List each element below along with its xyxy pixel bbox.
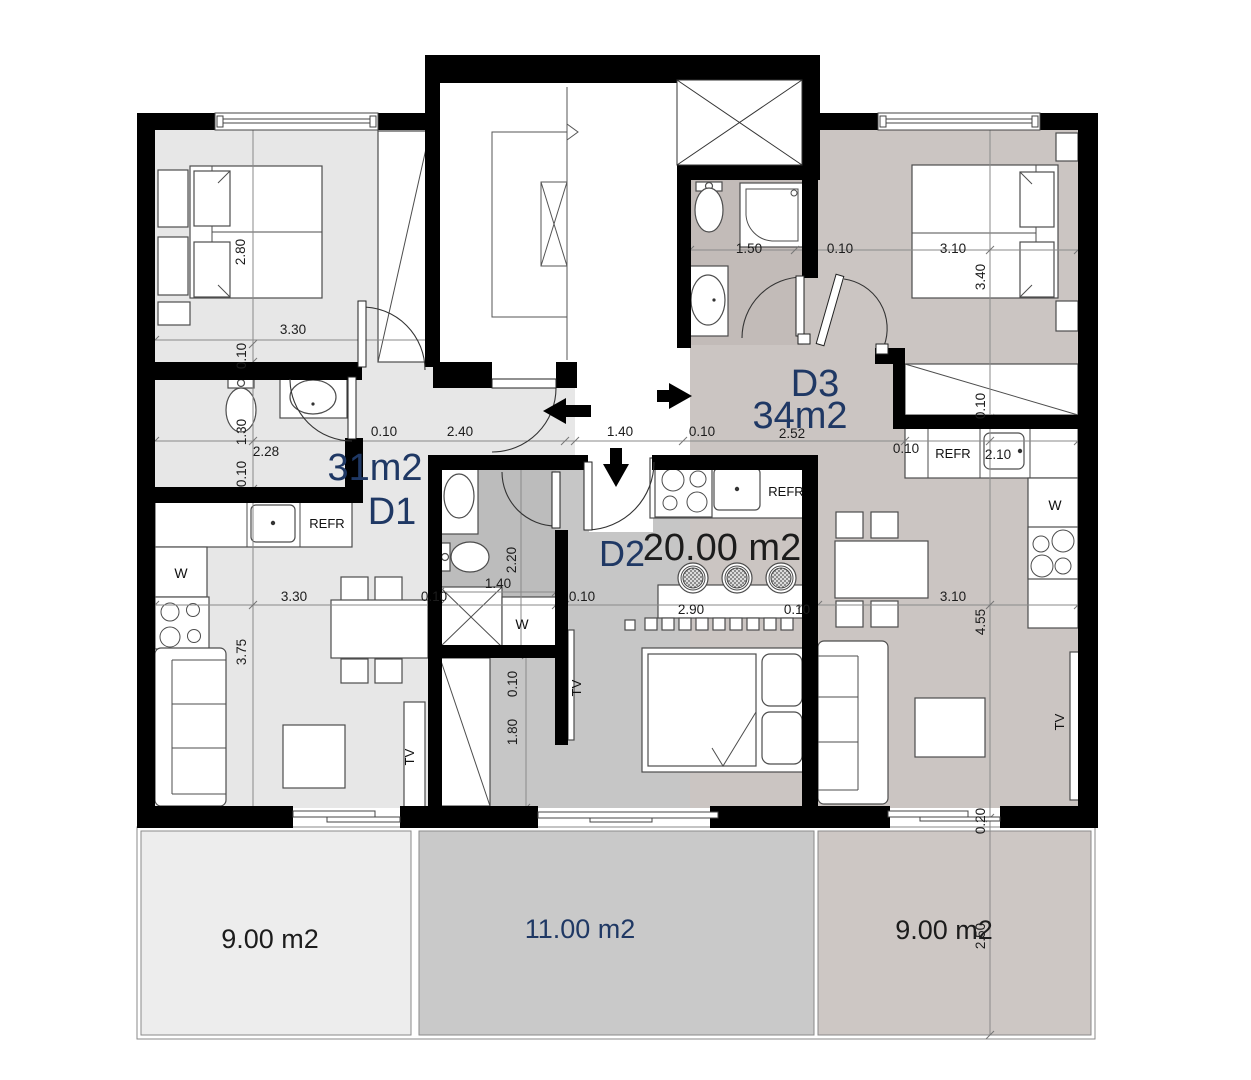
washer-label-d3: W bbox=[1048, 497, 1062, 513]
nightstand bbox=[1056, 133, 1078, 161]
dimension-label: 1.40 bbox=[485, 576, 511, 591]
unit-d2-area-label: 20.00 m2 bbox=[643, 527, 801, 569]
dimension-label: 0.10 bbox=[893, 441, 919, 456]
refrigerator-label-d2: REFR bbox=[768, 484, 803, 499]
dimension-label: 4.55 bbox=[973, 609, 988, 635]
closet bbox=[158, 302, 190, 325]
dimension-label: 0.10 bbox=[784, 602, 810, 617]
dimension-label: 0.10 bbox=[827, 241, 853, 256]
dimension-label: 1.80 bbox=[505, 719, 520, 745]
stove bbox=[1028, 527, 1078, 579]
tv-panel bbox=[1070, 652, 1079, 800]
dimension-label: 2.28 bbox=[253, 444, 279, 459]
dimension-label: 3.10 bbox=[940, 241, 966, 256]
dimension-label: 0.10 bbox=[689, 424, 715, 439]
refrigerator-label-d3: REFR bbox=[935, 446, 970, 461]
bathroom-sink bbox=[688, 266, 728, 336]
tv-label-d2: TV bbox=[569, 679, 584, 696]
dimension-label: 0.10 bbox=[421, 589, 447, 604]
refrigerator-label-d1: REFR bbox=[309, 516, 344, 531]
dimension-label: 1.50 bbox=[736, 241, 762, 256]
washer-label-d1: W bbox=[174, 565, 188, 581]
slider-d2-terrace bbox=[538, 812, 718, 822]
dimension-label: 3.30 bbox=[281, 589, 307, 604]
dimension-label: 0.10 bbox=[973, 393, 988, 419]
dimension-label: 2.50 bbox=[973, 923, 988, 949]
dimension-label: 3.10 bbox=[940, 589, 966, 604]
stove bbox=[655, 462, 712, 517]
double-bed bbox=[642, 648, 810, 772]
wardrobe bbox=[378, 131, 430, 362]
corridor-floor bbox=[575, 362, 690, 458]
tv-label-d1: TV bbox=[402, 748, 417, 765]
dimension-label: 1.40 bbox=[607, 424, 633, 439]
shower bbox=[740, 183, 804, 247]
dimension-label: 0.20 bbox=[973, 808, 988, 834]
wardrobe bbox=[440, 658, 490, 806]
dimension-label: 0.10 bbox=[569, 589, 595, 604]
unit-d1-hall-floor bbox=[440, 380, 575, 458]
dimension-label: 3.30 bbox=[280, 322, 306, 337]
dimension-label: 0.10 bbox=[505, 671, 520, 697]
floor-plan-canvas: 31m2 D1 D2 20.00 m2 D3 34m2 9.00 m2 11.0… bbox=[0, 0, 1251, 1080]
slider-d1-terrace bbox=[293, 811, 400, 822]
terrace-center-area-label: 11.00 m2 bbox=[525, 914, 636, 944]
dimension-label: 0.10 bbox=[234, 343, 249, 369]
coffee-table bbox=[283, 725, 345, 788]
dimension-label: 2.20 bbox=[504, 547, 519, 573]
dimension-label: 2.52 bbox=[779, 426, 805, 441]
elevator-shaft bbox=[677, 80, 802, 165]
sofa bbox=[818, 641, 888, 804]
dimension-label: 2.40 bbox=[447, 424, 473, 439]
dimension-label: 2.90 bbox=[678, 602, 704, 617]
wardrobe bbox=[905, 364, 1078, 415]
dimension-label: 3.75 bbox=[234, 639, 249, 665]
unit-d1-id-label: D1 bbox=[368, 491, 417, 533]
unit-d2-id-label: D2 bbox=[599, 533, 645, 574]
dimension-label: 2.80 bbox=[233, 239, 248, 265]
unit-d1-area-label: 31m2 bbox=[327, 447, 422, 489]
dimension-label: 0.10 bbox=[371, 424, 397, 439]
double-bed bbox=[190, 166, 322, 298]
nightstand bbox=[1056, 301, 1078, 331]
nightstand bbox=[158, 170, 188, 227]
tv-label-d3: TV bbox=[1052, 713, 1067, 730]
washer-label-d2: W bbox=[515, 616, 529, 632]
shower bbox=[440, 587, 502, 647]
floor-plan-drawing: 31m2 D1 D2 20.00 m2 D3 34m2 9.00 m2 11.0… bbox=[0, 0, 1251, 1080]
bathroom-sink bbox=[440, 462, 478, 534]
toilet bbox=[695, 182, 723, 232]
dimension-label: 3.40 bbox=[973, 264, 988, 290]
coffee-table bbox=[915, 698, 985, 757]
nightstand bbox=[158, 237, 188, 295]
toilet bbox=[440, 542, 489, 572]
sofa bbox=[155, 648, 226, 806]
dimension-label: 1.30 bbox=[234, 419, 249, 445]
window-d3-bedroom bbox=[878, 113, 1040, 130]
terrace-left-area-label: 9.00 m2 bbox=[221, 924, 319, 954]
dimension-label: 0.10 bbox=[234, 461, 249, 487]
dimension-label: 2.10 bbox=[985, 447, 1011, 462]
window-d1-bedroom bbox=[215, 113, 378, 130]
